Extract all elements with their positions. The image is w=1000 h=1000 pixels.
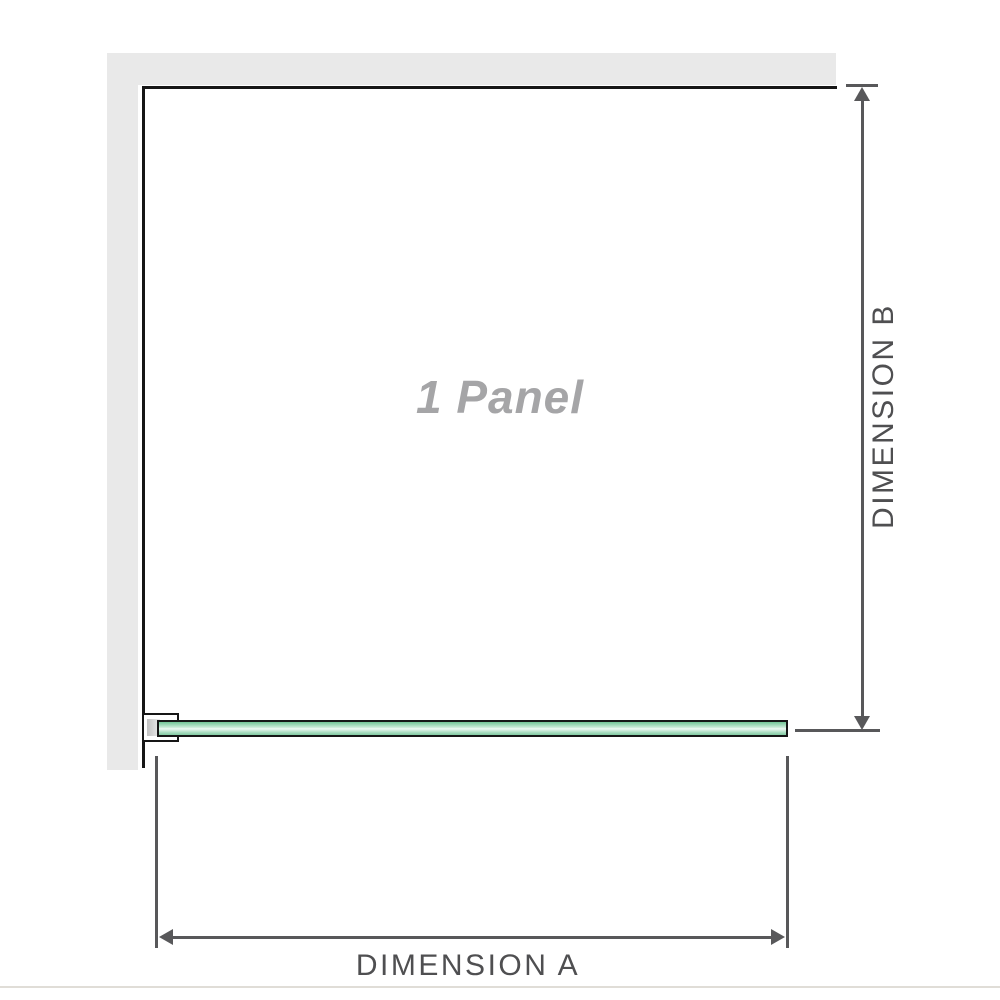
panel-frame-left-edge xyxy=(142,86,145,768)
arrow-left-icon xyxy=(159,929,173,945)
dimension-a-label: DIMENSION A xyxy=(268,948,668,984)
dimension-a-left-extension-line xyxy=(155,756,158,948)
arrow-down-icon xyxy=(854,716,870,730)
dimension-a-line xyxy=(170,936,774,939)
arrow-right-icon xyxy=(771,929,785,945)
diagram-canvas: 1 Panel DIMENSION B DIMENSION A xyxy=(0,0,1000,1000)
panel-count-label: 1 Panel xyxy=(330,368,670,426)
wall-left-bar xyxy=(107,53,138,770)
dimension-b-line xyxy=(861,98,864,719)
glass-panel xyxy=(157,720,788,737)
dimension-a-right-extension-line xyxy=(786,756,789,948)
wall-top-bar xyxy=(107,53,836,85)
dimension-b-label: DIMENSION B xyxy=(867,256,901,576)
panel-frame-top-edge xyxy=(143,86,837,89)
baseline-divider xyxy=(0,986,1000,988)
arrow-up-icon xyxy=(854,87,870,101)
